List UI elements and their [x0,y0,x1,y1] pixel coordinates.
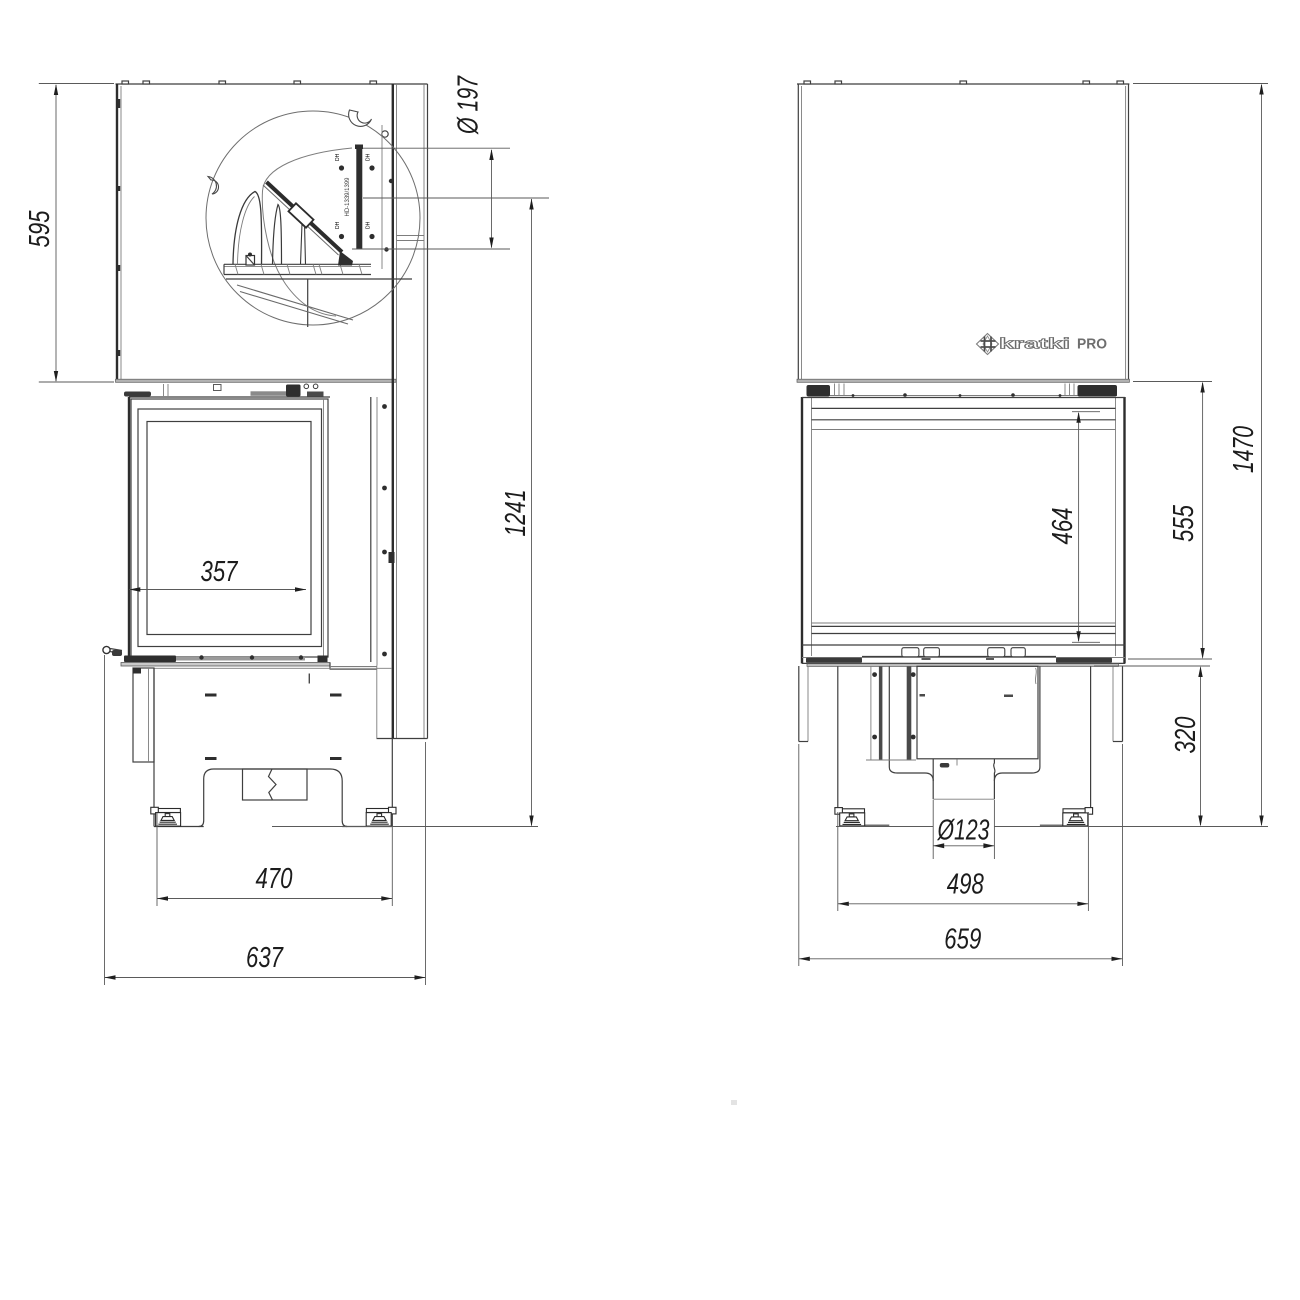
svg-text:320: 320 [1170,717,1202,754]
svg-text:kratki: kratki [999,336,1070,353]
svg-text:Ø 197: Ø 197 [453,75,485,135]
svg-text:470: 470 [256,863,293,895]
svg-text:PRO: PRO [1077,337,1107,353]
svg-text:1470: 1470 [1228,426,1260,473]
svg-text:DH: DH [335,153,341,161]
svg-text:DH: DH [335,221,341,229]
svg-text:1241: 1241 [500,490,532,537]
svg-text:DH: DH [366,221,372,229]
svg-text:357: 357 [201,556,239,588]
svg-text:Ø123: Ø123 [937,815,990,847]
svg-text:DH: DH [366,153,372,161]
svg-text:498: 498 [947,869,984,901]
svg-text:637: 637 [246,942,284,974]
svg-text:659: 659 [944,924,981,956]
svg-text:464: 464 [1047,508,1079,545]
svg-text:HD-1339/1399: HD-1339/1399 [345,177,351,217]
svg-text:555: 555 [1168,504,1200,542]
svg-text:595: 595 [24,210,56,248]
